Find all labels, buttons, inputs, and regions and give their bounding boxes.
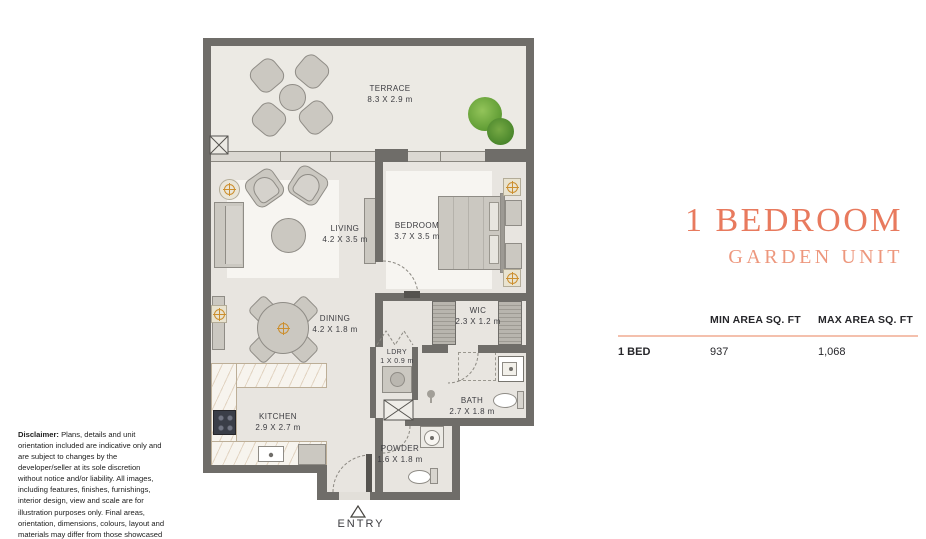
room-name: BEDROOM xyxy=(377,221,457,232)
room-dims: 1.6 X 1.8 m xyxy=(365,455,435,466)
coffee-table xyxy=(271,218,306,253)
downlight-icon xyxy=(503,178,521,196)
nightstand xyxy=(505,243,522,269)
tree-icon xyxy=(487,118,514,145)
kitchen-sink xyxy=(258,446,284,462)
toilet-tank xyxy=(430,468,438,484)
basin-icon xyxy=(502,362,517,376)
wall-segment xyxy=(375,149,408,162)
stove xyxy=(213,410,236,435)
room-label-dining: DINING 4.2 X 1.8 m xyxy=(295,314,375,336)
pendant-light-icon xyxy=(278,323,289,334)
bath-sink xyxy=(498,356,524,382)
page-title: 1 BEDROOM xyxy=(685,202,903,240)
room-label-kitchen: KITCHEN 2.9 X 2.7 m xyxy=(238,412,318,434)
page-subtitle: GARDEN UNIT xyxy=(728,246,903,269)
wall-segment xyxy=(370,492,460,500)
washing-machine xyxy=(382,366,412,393)
nightstand xyxy=(505,200,522,226)
downlight-icon xyxy=(211,305,227,323)
wall-segment xyxy=(203,465,325,473)
room-name: TERRACE xyxy=(345,84,435,95)
room-name: POWDER xyxy=(365,444,435,455)
min-area-value: 937 xyxy=(710,346,818,358)
wall-segment xyxy=(203,38,534,46)
table-divider xyxy=(618,335,918,337)
light-target-icon xyxy=(214,309,225,320)
room-name: BATH xyxy=(436,396,508,407)
entry-arrow-icon xyxy=(351,506,365,517)
light-target-icon xyxy=(507,273,518,284)
room-name: KITCHEN xyxy=(238,412,318,423)
room-name: LIVING xyxy=(305,224,385,235)
washer-drum-icon xyxy=(390,372,405,387)
room-dims: 4.2 X 3.5 m xyxy=(305,235,385,246)
bed-pillow xyxy=(489,202,499,231)
kitchen-cabinet xyxy=(298,444,326,465)
table-spacer xyxy=(618,314,710,335)
room-label-bedroom: BEDROOM 3.7 X 3.5 m xyxy=(377,221,457,243)
entry-threshold xyxy=(339,492,370,500)
wall-segment xyxy=(452,418,534,426)
downlight-icon xyxy=(503,269,521,287)
brochure-page: TERRACE 8.3 X 2.9 m LIVING 4.2 X 3.5 m B… xyxy=(0,0,926,539)
disclaimer-label: Disclaimer: xyxy=(18,430,59,439)
row-label: 1 BED xyxy=(618,346,710,358)
wall-segment xyxy=(422,345,448,353)
toilet-tank xyxy=(517,391,524,409)
wall-segment xyxy=(452,418,460,500)
room-label-bath: BATH 2.7 X 1.8 m xyxy=(436,396,508,418)
wall-segment xyxy=(478,345,526,353)
room-name: WIC xyxy=(443,306,513,317)
room-name: LDRY xyxy=(375,348,419,357)
room-label-terrace: TERRACE 8.3 X 2.9 m xyxy=(345,84,435,106)
room-label-wic: WIC 2.3 X 1.2 m xyxy=(443,306,513,328)
light-target-icon xyxy=(507,182,518,193)
room-label-powder: POWDER 1.6 X 1.8 m xyxy=(365,444,435,466)
light-target-icon xyxy=(224,184,235,195)
room-dims: 8.3 X 2.9 m xyxy=(345,95,435,106)
sofa-seat xyxy=(225,206,242,264)
room-label-ldry: LDRY 1 X 0.9 m xyxy=(375,348,419,367)
sofa xyxy=(214,202,244,268)
wall-segment xyxy=(405,418,452,426)
wall-segment xyxy=(383,293,526,301)
bed-pillow xyxy=(489,235,499,264)
min-area-header: MIN AREA SQ. FT xyxy=(710,314,818,335)
room-dims: 4.2 X 1.8 m xyxy=(295,325,375,336)
wall-segment xyxy=(526,38,534,426)
sliding-glass-doors xyxy=(211,151,526,162)
room-dims: 3.7 X 3.5 m xyxy=(377,232,457,243)
entry-label: ENTRY xyxy=(326,518,396,530)
disclaimer-body: Plans, details and unit orientation incl… xyxy=(18,430,164,539)
room-dims: 2.9 X 2.7 m xyxy=(238,423,318,434)
room-name: DINING xyxy=(295,314,375,325)
wall-segment xyxy=(317,492,339,500)
wall-segment xyxy=(485,149,526,162)
wall-segment xyxy=(375,293,383,347)
room-label-living: LIVING 4.2 X 3.5 m xyxy=(305,224,385,246)
downlight-icon xyxy=(219,179,240,200)
max-area-value: 1,068 xyxy=(818,346,918,358)
toilet xyxy=(408,470,431,484)
room-dims: 2.3 X 1.2 m xyxy=(443,317,513,328)
room-dims: 2.7 X 1.8 m xyxy=(436,407,508,418)
area-table: MIN AREA SQ. FT MAX AREA SQ. FT 1 BED 93… xyxy=(618,314,918,358)
wall-segment xyxy=(203,38,211,473)
shower-area xyxy=(458,352,496,381)
room-dims: 1 X 0.9 m xyxy=(375,357,419,366)
terrace-table xyxy=(279,84,306,111)
max-area-header: MAX AREA SQ. FT xyxy=(818,314,918,335)
disclaimer-text: Disclaimer: Plans, details and unit orie… xyxy=(18,429,166,539)
